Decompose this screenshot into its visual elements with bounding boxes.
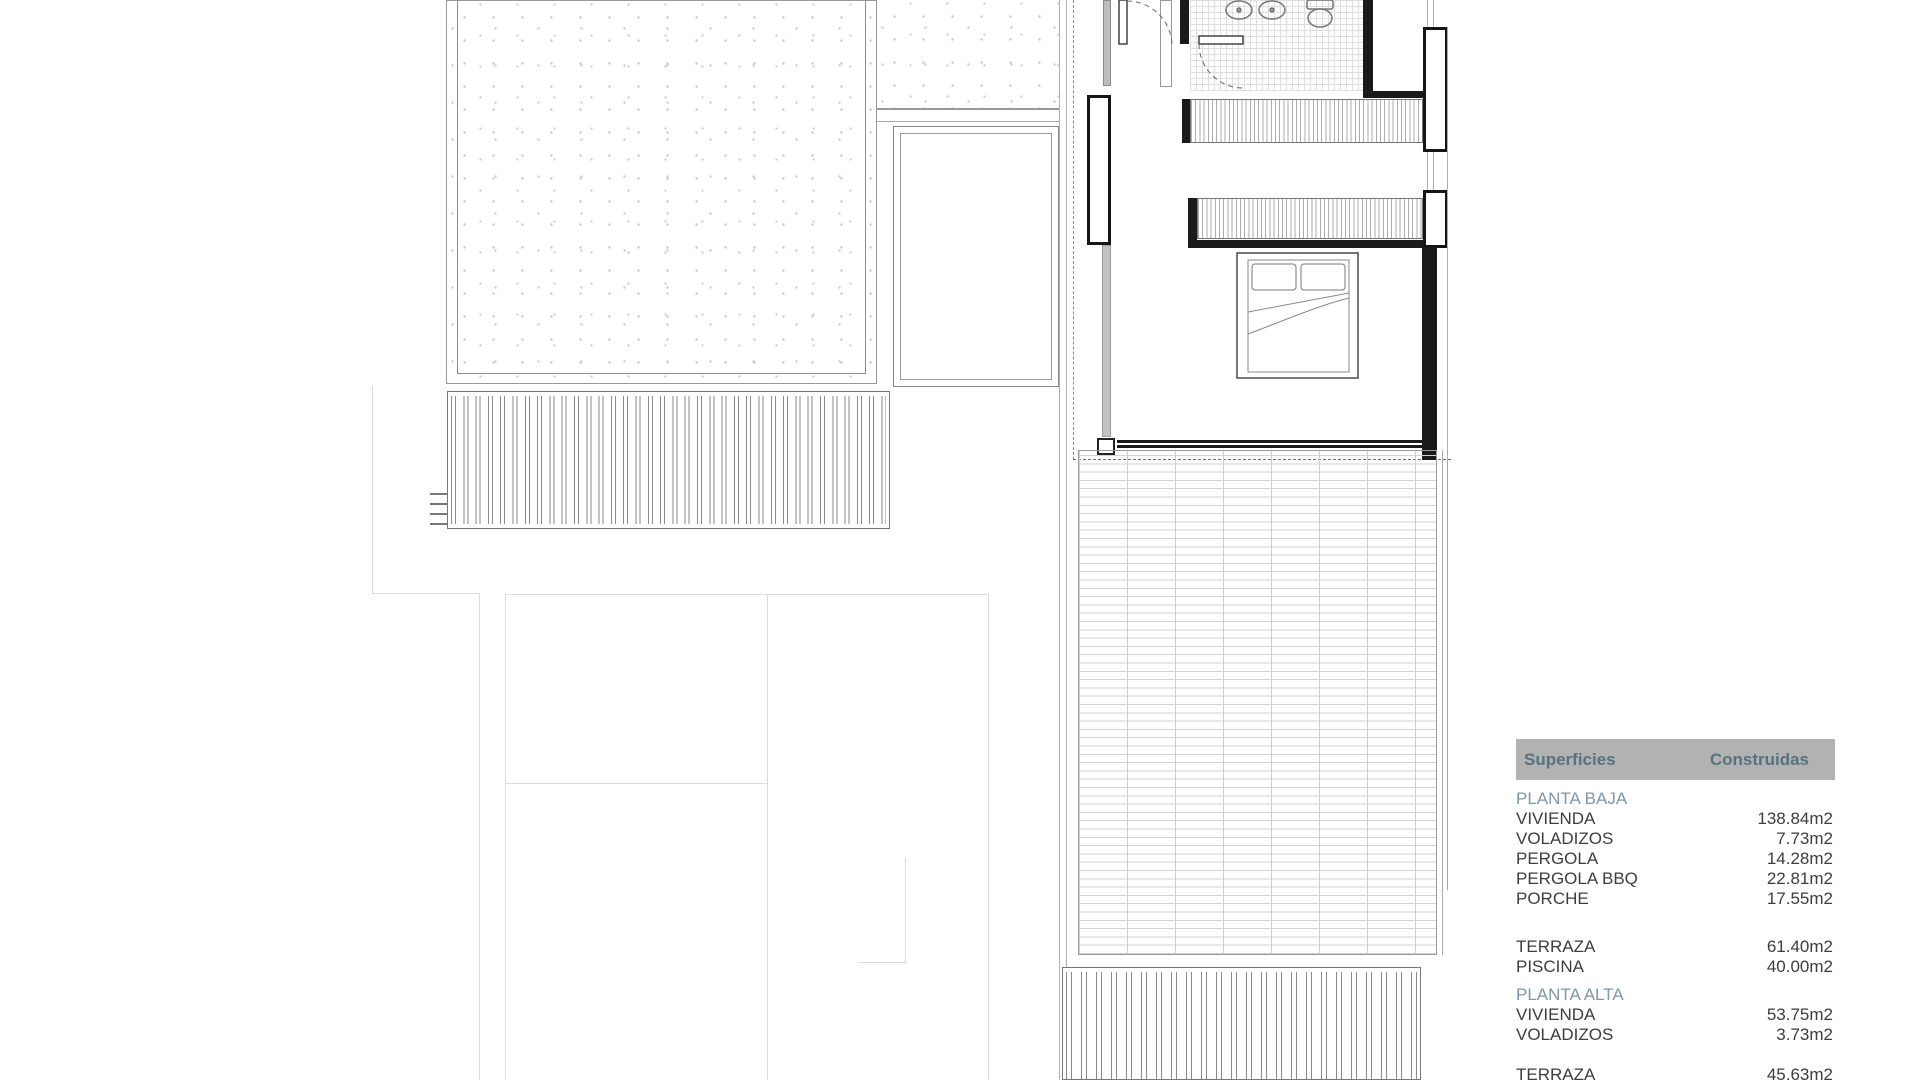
toilet-bowl-icon [1308, 9, 1332, 27]
gravel-roof-inner-border [457, 1, 866, 374]
gravel-roof-strip [877, 0, 1059, 108]
legend-value: 40.00m2 [1767, 957, 1835, 977]
legend-value: 3.73m2 [1776, 1025, 1835, 1045]
pergola-slats [447, 391, 890, 529]
groundfloor-outline-h1 [372, 593, 480, 594]
door-leaf [1199, 36, 1243, 44]
flat-roof-area [893, 126, 1059, 387]
legend-header-bar: Superficies Construidas [1516, 739, 1835, 780]
legend-label: TERRAZA [1516, 937, 1595, 957]
roof-strip-edge-line2 [877, 121, 1059, 122]
legend-label: VIVIENDA [1516, 1005, 1595, 1025]
legend-label: PISCINA [1516, 957, 1584, 977]
site-line-1 [1059, 0, 1060, 1080]
legend-label: VOLADIZOS [1516, 829, 1613, 849]
legend-value: 138.84m2 [1757, 809, 1835, 829]
legend-label: PORCHE [1516, 889, 1589, 909]
legend-value [1833, 985, 1835, 1005]
legend-value: 22.81m2 [1767, 869, 1835, 889]
pool-inner-v [767, 594, 768, 1080]
legend-row: PERGOLA 14.28m2 [1516, 849, 1835, 869]
legend-row: PISCINA 40.00m2 [1516, 957, 1835, 977]
legend-col-construidas: Construidas [1710, 750, 1809, 770]
floor-plan-sheet: Superficies Construidas PLANTA BAJA VIVI… [0, 0, 1920, 1080]
pool-inner-h [505, 783, 768, 784]
steps-symbol [430, 493, 447, 531]
legend-label: PLANTA BAJA [1516, 789, 1627, 809]
bed-pillow [1301, 264, 1345, 290]
door-swing-arc [1199, 44, 1243, 88]
door-swing-arc [1127, 1, 1172, 45]
legend-group-row: PLANTA ALTA [1516, 985, 1835, 1005]
legend-row: VIVIENDA 138.84m2 [1516, 809, 1835, 829]
legend-row: TERRAZA 61.40m2 [1516, 937, 1835, 957]
flat-roof-inner-border [900, 133, 1052, 380]
legend-row: PERGOLA BBQ 22.81m2 [1516, 869, 1835, 889]
groundfloor-notch-v [905, 858, 906, 964]
legend-value: 61.40m2 [1767, 937, 1835, 957]
legend-value: 14.28m2 [1767, 849, 1835, 869]
fixtures-layer [1080, 0, 1460, 480]
groundfloor-notch-h [858, 962, 906, 963]
legend-row: VOLADIZOS 7.73m2 [1516, 829, 1835, 849]
legend-label: VIVIENDA [1516, 809, 1595, 829]
legend-row: TERRAZA 45.63m2 [1516, 1065, 1835, 1080]
legend-label: PERGOLA [1516, 849, 1598, 869]
legend-row: VOLADIZOS 3.73m2 [1516, 1025, 1835, 1045]
legend-col-superficies: Superficies [1524, 750, 1616, 770]
legend-value [1833, 789, 1835, 809]
overhang-dashed-v [1073, 0, 1074, 460]
legend-value: 45.63m2 [1767, 1065, 1835, 1080]
pool-outline [505, 594, 989, 1080]
door-leaf [1119, 0, 1127, 44]
legend-value: 17.55m2 [1767, 889, 1835, 909]
groundfloor-outline-v1 [372, 386, 373, 594]
legend-value: 53.75m2 [1767, 1005, 1835, 1025]
legend-label: VOLADIZOS [1516, 1025, 1613, 1045]
roof-strip-edge-line [877, 108, 1059, 110]
washbasin-drain-icon [1270, 8, 1274, 12]
groundfloor-outline-v2 [479, 593, 480, 1080]
double-bed [1237, 253, 1358, 378]
legend-label: PERGOLA BBQ [1516, 869, 1638, 889]
lower-pergola-slats [1062, 967, 1421, 1080]
legend-table: PLANTA BAJA VIVIENDA 138.84m2 VOLADIZOS … [1516, 789, 1835, 1080]
toilet-cistern-icon [1307, 0, 1333, 9]
site-line-2 [1066, 0, 1067, 1080]
legend-row: PORCHE 17.55m2 [1516, 889, 1835, 909]
gravel-roof-area [446, 0, 877, 384]
washbasin-drain-icon [1237, 8, 1241, 12]
legend-group-row: PLANTA BAJA [1516, 789, 1835, 809]
lower-slat-pattern [1066, 972, 1417, 1079]
legend-label: TERRAZA [1516, 1065, 1595, 1080]
bed-pillow [1252, 264, 1296, 290]
terrace-tiled-deck [1078, 450, 1437, 955]
legend-label: PLANTA ALTA [1516, 985, 1624, 1005]
legend-row: VIVIENDA 53.75m2 [1516, 1005, 1835, 1025]
legend-value: 7.73m2 [1776, 829, 1835, 849]
pergola-slat-pattern [451, 396, 886, 524]
terrace-right-double-line [1442, 450, 1443, 955]
terrace-east-line [1447, 460, 1448, 890]
